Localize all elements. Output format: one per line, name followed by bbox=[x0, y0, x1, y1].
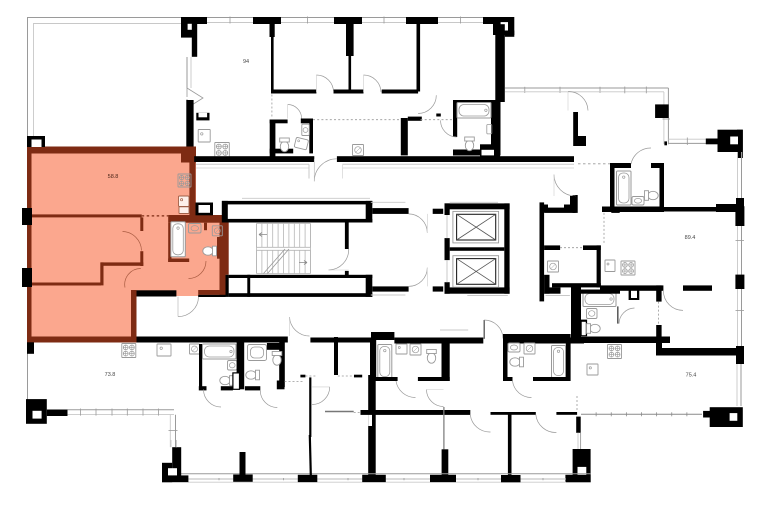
svg-text:89.4: 89.4 bbox=[685, 235, 696, 241]
svg-text:75.4: 75.4 bbox=[686, 373, 697, 379]
svg-text:58.8: 58.8 bbox=[108, 174, 119, 180]
svg-text:73.8: 73.8 bbox=[105, 372, 116, 378]
svg-text:94: 94 bbox=[243, 59, 249, 65]
